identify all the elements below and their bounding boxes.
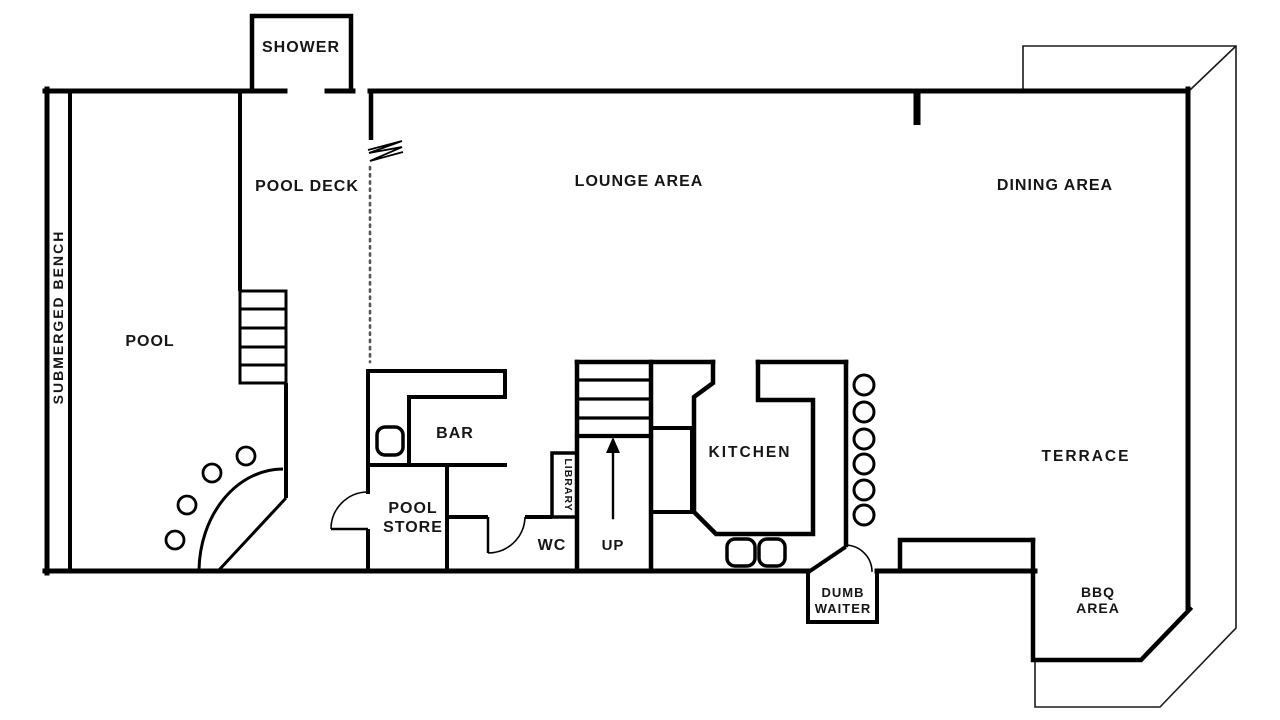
dumb-waiter-diagonal-wall xyxy=(810,548,844,571)
room-label-bbq-line1: BBQ xyxy=(1081,584,1115,600)
service-shaft-box xyxy=(651,428,692,512)
pool-stool-circle xyxy=(178,496,196,514)
room-label-library: LIBRARY xyxy=(562,458,574,511)
pool-store-structures xyxy=(331,465,447,571)
bbq-walls xyxy=(900,540,1190,660)
dumb-waiter-door-arc xyxy=(845,545,872,571)
terrace-circle xyxy=(854,402,874,422)
deck-lounge-divider xyxy=(368,91,403,362)
room-label-bbq-line2: AREA xyxy=(1076,600,1120,616)
stair-treads xyxy=(577,380,651,418)
pool-stool-circle xyxy=(237,447,255,465)
floor-plan-svg: SHOWER POOL DECK LOUNGE AREA DINING AREA… xyxy=(0,0,1280,720)
room-label-terrace: TERRACE xyxy=(1042,448,1131,465)
kitchen-sink-left xyxy=(727,539,755,566)
outer-walls xyxy=(45,89,1188,609)
terrace-circle xyxy=(854,454,874,474)
room-label-dumb-waiter-line1: DUMB xyxy=(822,585,865,600)
deck-outline-path xyxy=(1023,46,1236,707)
bar-sink xyxy=(377,427,403,455)
deck-corner-diagonal xyxy=(1190,46,1236,90)
pool-store-door-arc xyxy=(331,492,368,529)
kitchen-structures xyxy=(694,362,846,566)
terrace-circle xyxy=(854,375,874,395)
floor-plan-canvas: SHOWER POOL DECK LOUNGE AREA DINING AREA… xyxy=(0,0,1280,720)
room-label-pool-store-line2: STORE xyxy=(383,519,443,536)
landing-pentagon xyxy=(651,362,713,428)
room-label-submerged-bench: SUBMERGED BENCH xyxy=(50,230,66,405)
pool-curved-edge xyxy=(199,469,283,570)
room-labels: SHOWER POOL DECK LOUNGE AREA DINING AREA… xyxy=(50,39,1130,616)
terrace-circle xyxy=(854,480,874,500)
terrace-circle xyxy=(854,505,874,525)
up-arrow-head xyxy=(606,437,620,453)
terrace-circle xyxy=(854,429,874,449)
pool-structures xyxy=(166,91,286,570)
room-label-shower: SHOWER xyxy=(262,39,340,56)
terrace-circles xyxy=(854,375,874,525)
pool-stools xyxy=(166,447,255,549)
room-label-wc: WC xyxy=(538,537,567,554)
room-label-dining: DINING AREA xyxy=(997,177,1113,194)
room-label-dumb-waiter-line2: WAITER xyxy=(815,601,872,616)
wall-break-symbol xyxy=(368,141,403,161)
room-label-pool-deck: POOL DECK xyxy=(255,178,359,195)
pool-stool-circle xyxy=(203,464,221,482)
pool-steps xyxy=(240,291,286,383)
terrace-bench-strip xyxy=(900,540,1033,571)
terrace-deck-outline xyxy=(1023,46,1236,707)
room-label-bar: BAR xyxy=(436,425,474,442)
wc-door-arc xyxy=(488,517,525,553)
room-label-up: UP xyxy=(602,537,625,554)
room-label-lounge: LOUNGE AREA xyxy=(575,173,704,190)
stair-landing xyxy=(651,362,713,512)
kitchen-sink-right xyxy=(759,539,785,566)
room-label-pool-store-line1: POOL xyxy=(388,500,437,517)
room-label-pool: POOL xyxy=(125,333,174,350)
pool-stool-circle xyxy=(166,531,184,549)
room-label-kitchen: KITCHEN xyxy=(709,444,792,461)
pool-diagonal-edge xyxy=(219,498,286,570)
